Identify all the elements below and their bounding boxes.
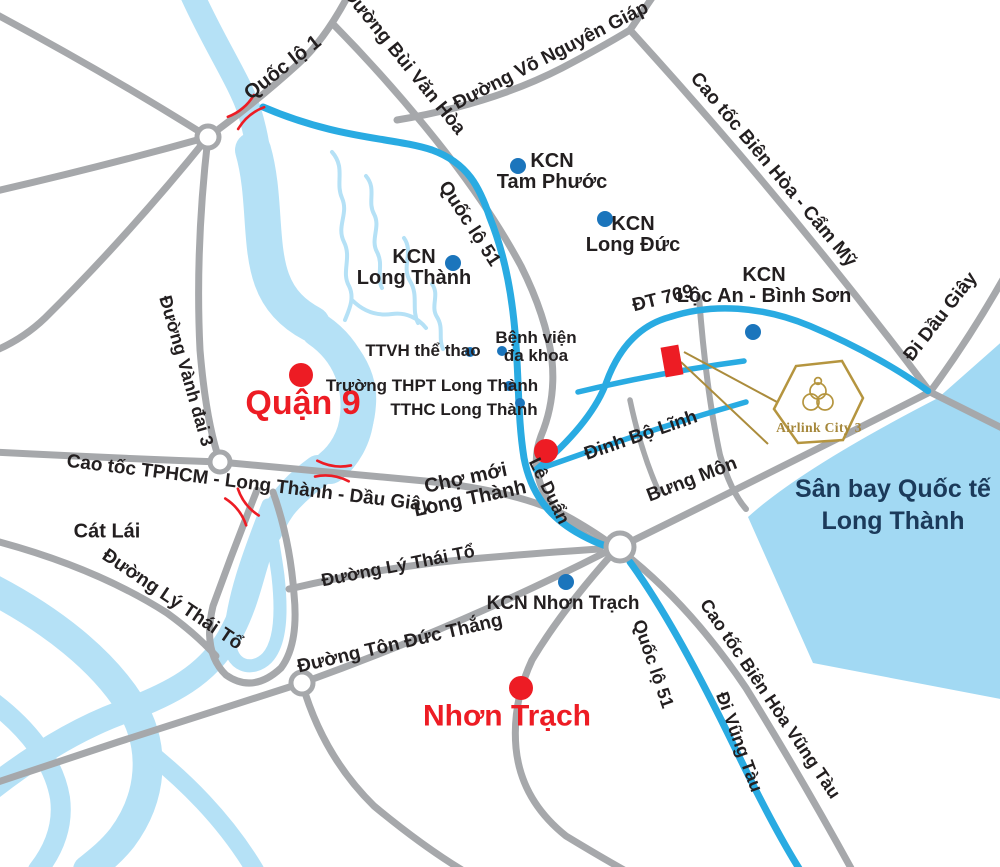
kcn-loc-an-binh-son-dot (745, 324, 761, 340)
label-kcn-long-duc: KCN Long Đức (586, 214, 680, 256)
kcn-name: Long Đức (586, 235, 680, 256)
label-airport: Sân bay Quốc tế Long Thành (795, 473, 991, 537)
road-quoc-lo-1-west (0, 12, 208, 137)
roundabout-long-thanh (606, 533, 634, 561)
label-nhon-trach: Nhơn Trạch (423, 700, 591, 732)
road-blue-street-1 (578, 361, 744, 392)
label-truong-thpt-long-thanh: Trường THPT Long Thành (326, 377, 538, 395)
kcn-nhon-trach-dot (558, 574, 574, 590)
label-airlink-city-3: Airlink City 3 (776, 421, 862, 435)
road-west-spur (0, 137, 208, 192)
label-kcn-long-thanh: KCN Long Thành (357, 247, 471, 289)
road-cao-toc-bien-hoa-cam-my (630, 30, 930, 392)
kcn-prefix: KCN (586, 214, 680, 235)
river-bottom-left-3 (140, 745, 255, 867)
roundabout-north (197, 126, 219, 148)
kcn-prefix: KCN (357, 247, 471, 268)
kcn-prefix: KCN (677, 265, 852, 286)
label-cat-lai: Cát Lái (74, 522, 141, 543)
location-map: Quốc lộ 1 Quốc lộ 51 Quốc lộ 51 ĐT 769 C… (0, 0, 1000, 867)
label-kcn-nhon-trach: KCN Nhơn Trạch (487, 594, 640, 614)
kcn-prefix: KCN (497, 151, 608, 172)
nhon-trach-dot (509, 676, 533, 700)
facility-line: Bệnh viện (495, 329, 576, 347)
label-kcn-loc-an-binh-son: KCN Lộc An - Bình Sơn (677, 265, 852, 307)
kcn-name: Tam Phước (497, 172, 608, 193)
airport-line: Long Thành (795, 505, 991, 537)
label-benh-vien-da-khoa: Bệnh viện đa khoa (495, 329, 576, 365)
kcn-name: Long Thành (357, 268, 471, 289)
river-widen-upper (253, 150, 312, 324)
airport-line: Sân bay Quốc tế (795, 473, 991, 505)
label-kcn-tam-phuoc: KCN Tam Phước (497, 151, 608, 193)
label-tthc-long-thanh: TTHC Long Thành (390, 401, 537, 419)
label-ttvh-the-thao: TTVH thể thao (365, 342, 480, 360)
kcn-name: Lộc An - Bình Sơn (677, 286, 852, 307)
facility-line: đa khoa (495, 347, 576, 365)
